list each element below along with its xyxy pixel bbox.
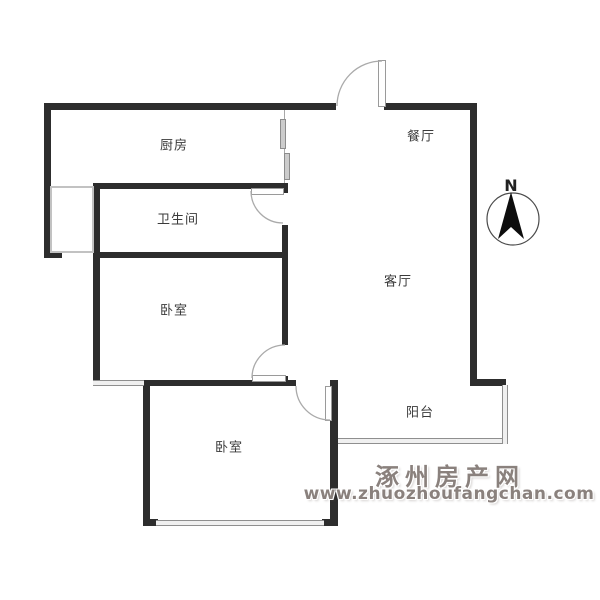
compass: N bbox=[487, 176, 539, 245]
bedroom2-door-arc bbox=[296, 386, 330, 420]
bathroom-door-arc bbox=[251, 191, 283, 223]
label-kitchen: 厨房 bbox=[160, 135, 188, 154]
floorplan-canvas: N 厨房 餐厅 卫生间 客厅 卧室 卧室 阳台 涿州房产网 www.zhuozh… bbox=[0, 0, 600, 600]
compass-needle-icon bbox=[498, 192, 524, 239]
watermark-site-url: www.zhuozhoufangchan.com bbox=[304, 484, 595, 504]
compass-north-label: N bbox=[504, 176, 517, 195]
label-bedroom-bottom: 卧室 bbox=[215, 437, 243, 456]
label-balcony: 阳台 bbox=[406, 402, 434, 421]
label-living: 客厅 bbox=[384, 271, 412, 290]
overlay-graphics: N bbox=[0, 0, 600, 600]
label-bathroom: 卫生间 bbox=[157, 209, 199, 228]
entry-door-arc bbox=[337, 61, 382, 106]
label-dining: 餐厅 bbox=[407, 126, 435, 145]
label-bedroom-top: 卧室 bbox=[160, 300, 188, 319]
bedroom1-door-arc bbox=[252, 345, 285, 378]
